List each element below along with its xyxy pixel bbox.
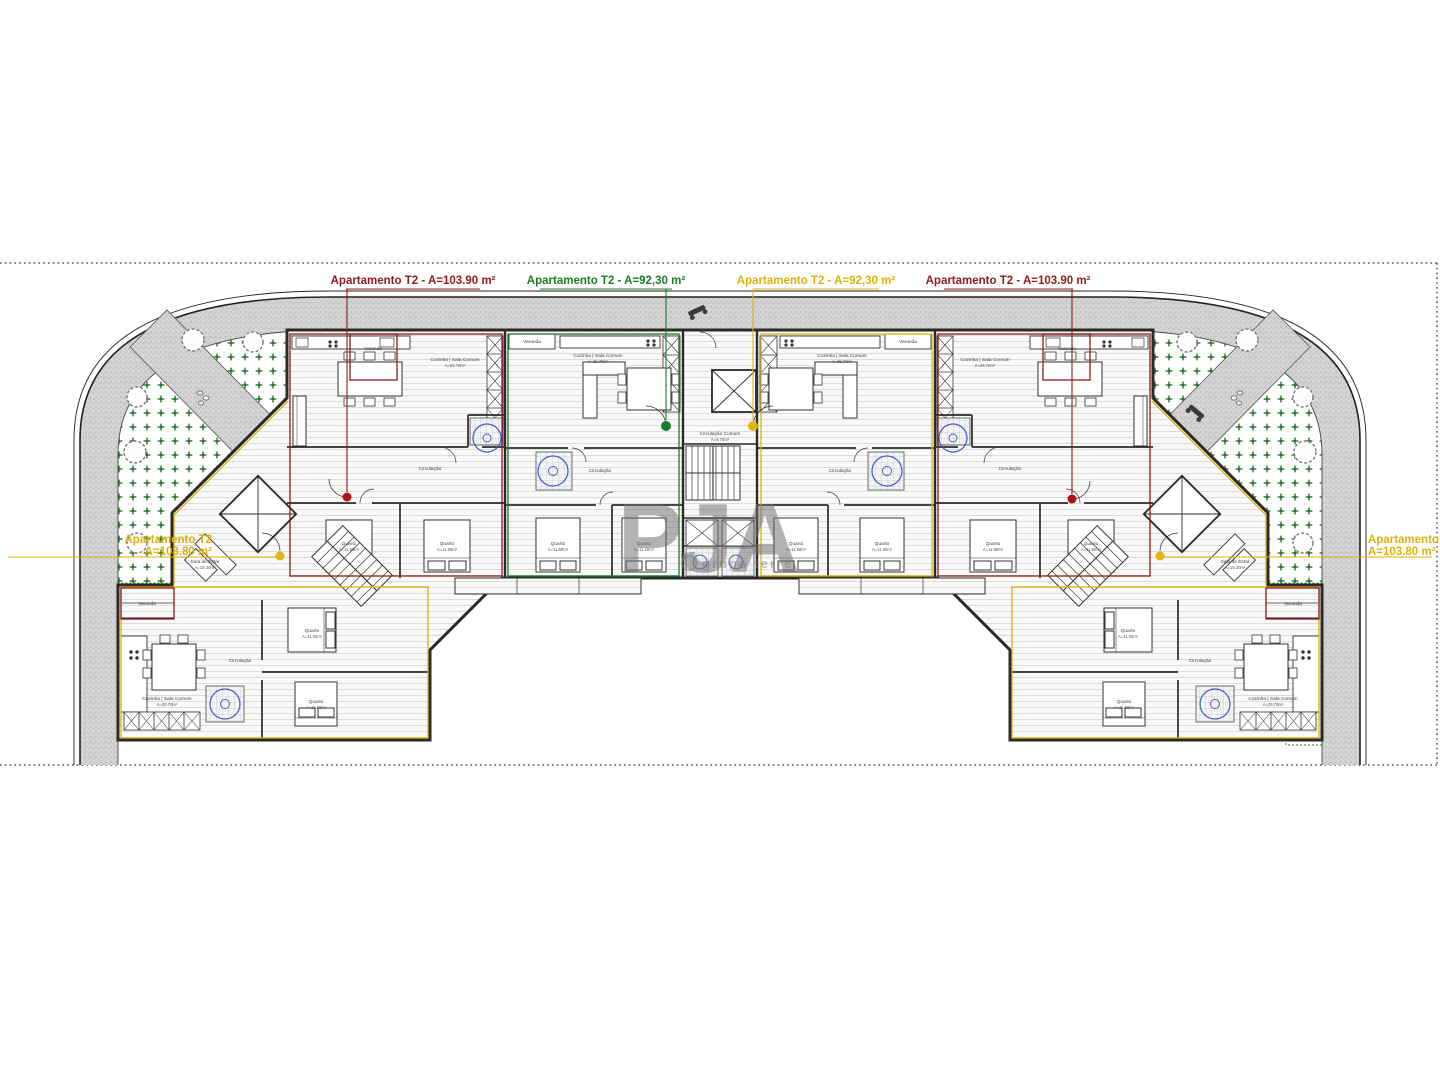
- watermark: PJA grupo terre: [618, 483, 799, 593]
- entry-dot-yellow-wing-right: [1156, 552, 1165, 561]
- svg-text:A=103.80 m²: A=103.80 m²: [145, 546, 213, 558]
- svg-text:A=103.80 m²: A=103.80 m²: [1368, 546, 1436, 558]
- svg-text:A=15.30m²: A=15.30m²: [195, 565, 216, 570]
- label-apartment-t2-side-right: Apartamento T2 A=103.80 m²: [1368, 534, 1440, 558]
- svg-text:Varanda: Varanda: [1284, 601, 1302, 607]
- svg-text:A=25.70m²: A=25.70m²: [445, 363, 466, 368]
- label-apartment-t2-red-left: Apartamento T2 - A=103.90 m²: [331, 275, 496, 287]
- entry-dot-green: [661, 421, 671, 431]
- svg-text:A=11.50m²: A=11.50m²: [872, 547, 893, 552]
- watermark-title: PJA: [618, 483, 799, 593]
- svg-text:A=11.50m²: A=11.50m²: [983, 547, 1004, 552]
- svg-text:A=11.50m²: A=11.50m²: [1118, 634, 1139, 639]
- svg-text:A=11.50m²: A=11.50m²: [1114, 705, 1135, 710]
- svg-text:Varanda: Varanda: [1058, 346, 1076, 352]
- entry-dot-yellow: [748, 421, 758, 431]
- svg-text:Circulação: Circulação: [999, 466, 1022, 472]
- svg-text:A=11.50m²: A=11.50m²: [1081, 547, 1102, 552]
- svg-text:A=11.50m²: A=11.50m²: [339, 547, 360, 552]
- svg-text:Circulação: Circulação: [829, 468, 852, 474]
- svg-text:Apartamento T2: Apartamento T2: [1368, 534, 1440, 546]
- svg-text:Circulação: Circulação: [419, 466, 442, 472]
- floor-plan: Apartamento T2 - A=103.90 m² Apartamento…: [0, 0, 1440, 1080]
- svg-text:Varanda: Varanda: [523, 339, 541, 345]
- svg-text:A=11.50m²: A=11.50m²: [302, 634, 323, 639]
- watermark-subtitle: grupo terre: [702, 556, 793, 571]
- svg-text:Varanda: Varanda: [138, 601, 156, 607]
- svg-text:Circulação: Circulação: [589, 468, 612, 474]
- entry-dot-yellow-wing-left: [276, 552, 285, 561]
- label-apartment-t2-green: Apartamento T2 - A=92,30 m²: [527, 275, 686, 287]
- svg-text:Varanda: Varanda: [899, 339, 917, 345]
- svg-text:A=25.70m²: A=25.70m²: [157, 702, 178, 707]
- svg-text:A=25.70m²: A=25.70m²: [1263, 702, 1284, 707]
- svg-text:Circulação: Circulação: [1189, 658, 1212, 664]
- svg-text:A=11.50m²: A=11.50m²: [548, 547, 569, 552]
- label-apartment-t2-red-right: Apartamento T2 - A=103.90 m²: [926, 275, 1091, 287]
- entry-dot-red-left: [343, 493, 352, 502]
- svg-text:A=15.30m²: A=15.30m²: [1225, 565, 1246, 570]
- svg-text:A=25.70m²: A=25.70m²: [975, 363, 996, 368]
- svg-text:Apartamento T2: Apartamento T2: [124, 534, 212, 546]
- svg-text:A=11.50m²: A=11.50m²: [306, 705, 327, 710]
- svg-text:Circulação: Circulação: [229, 658, 252, 664]
- svg-text:Varanda: Varanda: [364, 346, 382, 352]
- label-apartment-t2-yellow: Apartamento T2 - A=92,30 m²: [737, 275, 896, 287]
- svg-text:A=8.70m²: A=8.70m²: [711, 437, 730, 442]
- entry-dot-red-right: [1068, 495, 1077, 504]
- svg-text:A=25.70m²: A=25.70m²: [832, 359, 853, 364]
- svg-text:A=11.50m²: A=11.50m²: [437, 547, 458, 552]
- svg-text:A=25.70m²: A=25.70m²: [588, 359, 609, 364]
